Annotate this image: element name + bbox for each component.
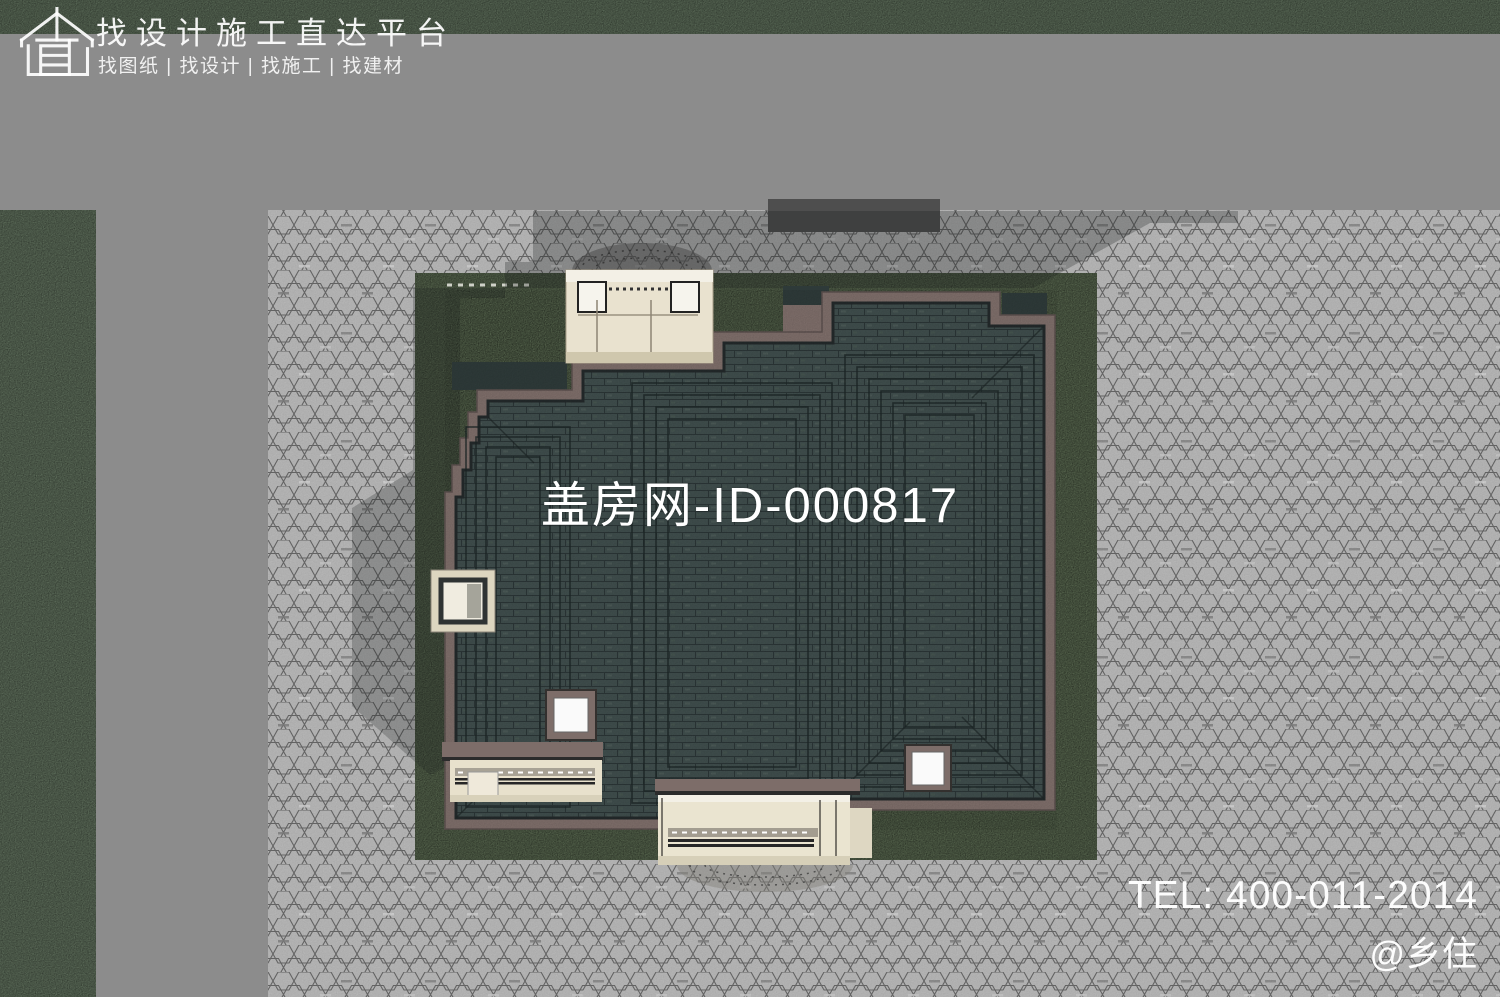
south-main-porch — [658, 795, 872, 865]
site-plan-screenshot: 找设计施工直达平台 找图纸 | 找设计 | 找施工 | 找建材 盖房网-ID-0… — [0, 0, 1500, 997]
brand-services: 找图纸 | 找设计 | 找施工 | 找建材 — [98, 51, 404, 78]
house-blueprint-icon — [12, 3, 98, 81]
north-entry-porch — [566, 270, 713, 363]
left-grass-verge — [0, 210, 96, 997]
west-chimney-structure — [431, 570, 495, 632]
skylight-right — [905, 745, 951, 791]
southwest-terrace — [450, 760, 602, 802]
watermark-tel: TEL: 400-011-2014 — [1128, 874, 1478, 918]
brand-title: 找设计施工直达平台 — [96, 8, 456, 53]
watermark-author-handle: @乡住 — [1369, 926, 1478, 977]
watermark-center-id: 盖房网-ID-000817 — [0, 466, 1500, 537]
skylight-left — [546, 690, 596, 740]
